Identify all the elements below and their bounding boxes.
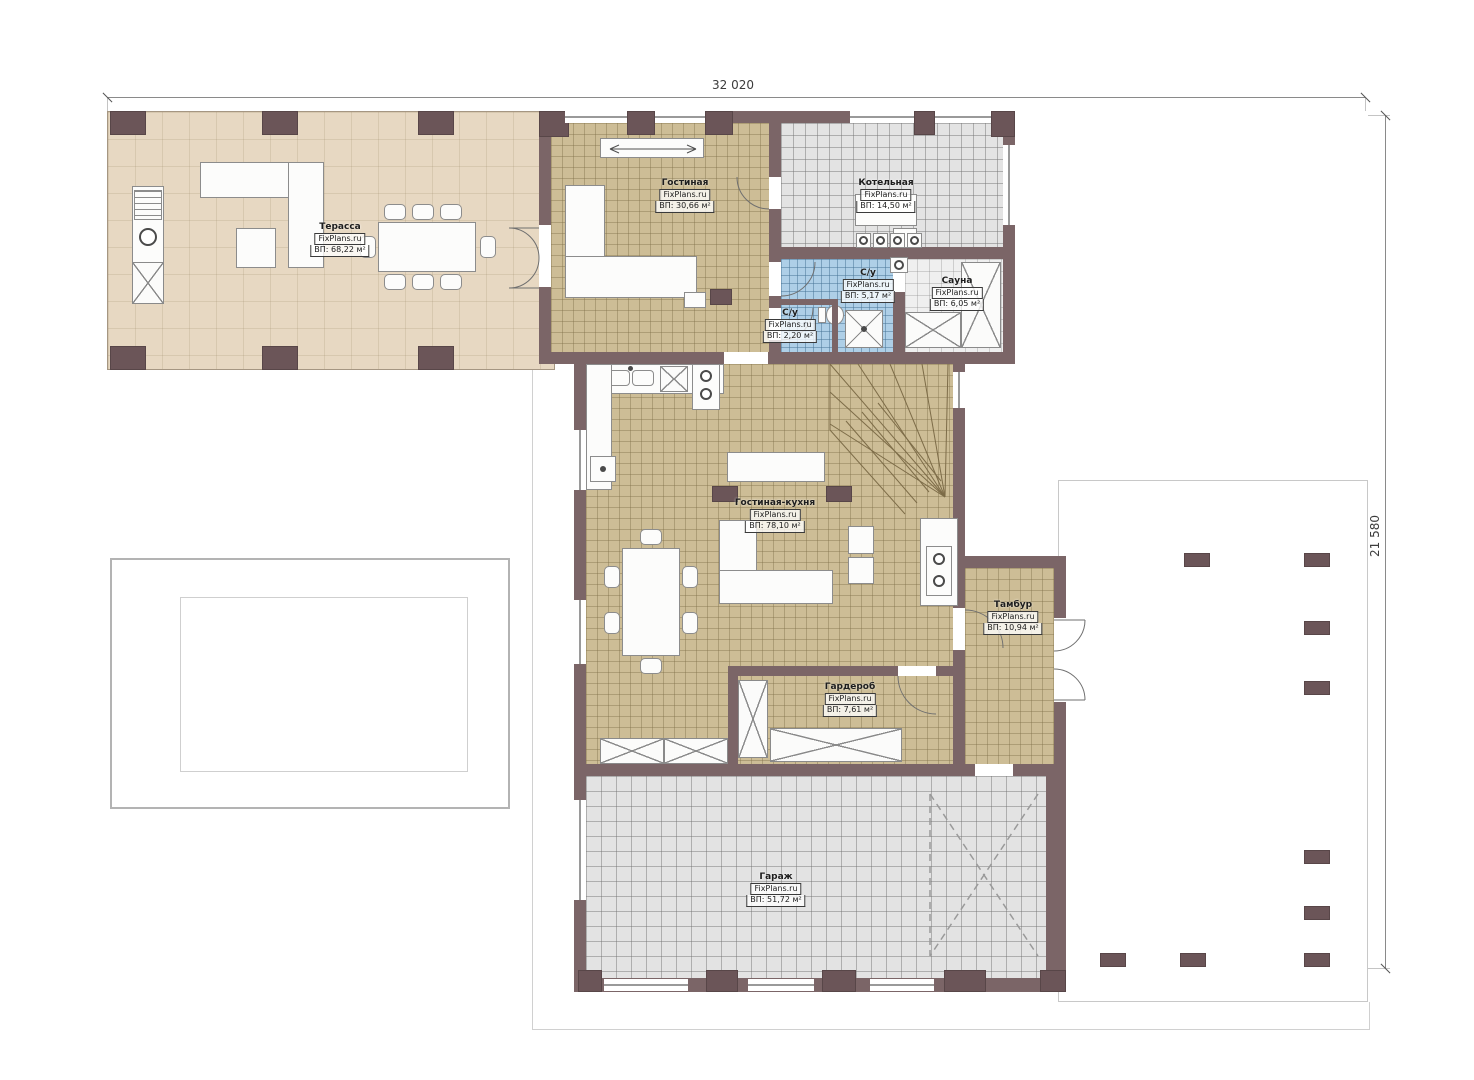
boiler-window [850, 111, 914, 123]
wc-partition-wall-v [832, 299, 838, 352]
kitchen-passage-opening [724, 352, 768, 364]
room-label-vestibule: Тамбур FixPlans.ru ВП: 10,94 м² [983, 600, 1042, 635]
dining-chair [604, 566, 620, 588]
kitchen-sofa-bottom [719, 570, 833, 604]
watermark: FixPlans.ru [824, 693, 875, 705]
room-area: ВП: 10,94 м² [983, 623, 1042, 634]
room-name: Гараж [759, 872, 792, 882]
watermark: FixPlans.ru [860, 189, 911, 201]
burner [700, 388, 712, 400]
vestibule-door-opening [953, 608, 965, 650]
room-label-boiler: Котельная FixPlans.ru ВП: 14,50 м² [856, 178, 915, 213]
wardrobe-wall-h [728, 666, 898, 676]
dining-table [622, 548, 680, 656]
dimension-height-label: 21 580 [1368, 510, 1382, 562]
boiler-window [935, 111, 991, 123]
room-label-sauna: Сауна FixPlans.ru ВП: 6,05 м² [930, 276, 984, 311]
porch-pillar [1304, 906, 1330, 920]
patio-outline-inner [180, 597, 468, 772]
garage-column [944, 970, 986, 992]
kitchen-side-window [953, 372, 965, 408]
outdoor-cabinet [132, 262, 164, 304]
dining-chair [682, 566, 698, 588]
toilet-tank [818, 307, 826, 323]
terrace-column [262, 111, 298, 135]
water-heater-dial [894, 260, 904, 270]
dining-chair [604, 612, 620, 634]
side-table [848, 526, 874, 554]
terrace-column [418, 111, 454, 135]
wardrobe-unit [738, 680, 768, 758]
living-window [655, 111, 705, 123]
outdoor-grill [134, 190, 162, 220]
wall-column [627, 111, 655, 135]
outdoor-sink [139, 228, 157, 246]
stove-burner [933, 575, 945, 587]
room-label-living: Гостиная FixPlans.ru ВП: 30,66 м² [655, 178, 714, 213]
dimension-line-right [1385, 115, 1386, 968]
kitchen-cabinet [660, 366, 688, 392]
terrace-door-opening [539, 225, 551, 287]
kitchen-island [727, 452, 825, 482]
wardrobe-unit [770, 728, 902, 762]
stove-burner [933, 553, 945, 565]
wall-column [991, 111, 1015, 137]
terrace-column [110, 346, 146, 370]
manifold-valve [859, 236, 868, 245]
living-side-table [684, 292, 706, 308]
entrance-door-opening [1054, 618, 1066, 702]
watermark: FixPlans.ru [750, 883, 801, 895]
room-name: Гардероб [825, 682, 876, 692]
terrace-chair [384, 274, 406, 290]
side-table [848, 557, 874, 584]
wall-column [705, 111, 733, 135]
living-boiler-door-opening [769, 177, 781, 209]
wardrobe-door-opening [898, 666, 936, 676]
room-name: Сауна [942, 276, 973, 286]
wall-column [914, 111, 935, 135]
garage-column [706, 970, 738, 992]
porch-pillar [1304, 681, 1330, 695]
burner [700, 370, 712, 382]
terrace-column [262, 346, 298, 370]
kitchen-window [574, 430, 586, 490]
terrace-column [110, 111, 146, 135]
terrace-chair [412, 274, 434, 290]
dining-chair [682, 612, 698, 634]
floor-plan-canvas: Терасса FixPlans.ru ВП: 68,22 м² Гостина… [0, 0, 1474, 1080]
terrace-column [418, 346, 454, 370]
room-name: С/у [860, 268, 876, 278]
porch-pillar [1184, 553, 1210, 567]
boiler-side-window [1003, 145, 1015, 225]
room-name: Гостиная-кухня [735, 498, 815, 508]
living-sofa-bottom [565, 256, 697, 298]
room-area: ВП: 5,17 м² [841, 291, 895, 302]
wc-partition-wall-h [781, 299, 838, 305]
manifold-valve [876, 236, 885, 245]
watermark: FixPlans.ru [314, 233, 365, 245]
terrace-chair [480, 236, 496, 258]
dimension-width-label: 32 020 [707, 78, 759, 92]
watermark: FixPlans.ru [987, 611, 1038, 623]
porch-pillar [1304, 850, 1330, 864]
terrace-coffee-table [236, 228, 276, 268]
site-boundary-bottom [532, 1029, 1370, 1030]
kitchen-window [574, 600, 586, 664]
porch-pillar [1304, 621, 1330, 635]
manifold-valve [910, 236, 919, 245]
room-area: ВП: 51,72 м² [746, 895, 805, 906]
garage-floor [586, 776, 1046, 978]
living-window [565, 111, 627, 123]
garage-column [578, 970, 602, 992]
watermark: FixPlans.ru [749, 509, 800, 521]
room-label-terrace: Терасса FixPlans.ru ВП: 68,22 м² [310, 222, 369, 257]
dining-chair [640, 529, 662, 545]
bar-stool [826, 486, 852, 502]
kitchen-faucet [628, 366, 633, 371]
shower-drain [861, 326, 867, 332]
garage-column [1040, 970, 1066, 992]
room-name: Котельная [858, 178, 913, 188]
room-area: ВП: 7,61 м² [823, 705, 877, 716]
porch-pillar [1304, 953, 1330, 967]
manifold-valve [893, 236, 902, 245]
dining-chair [640, 658, 662, 674]
porch-pillar [1100, 953, 1126, 967]
terrace-chair [440, 274, 462, 290]
room-area: ВП: 78,10 м² [745, 521, 804, 532]
room-label-garage: Гараж FixPlans.ru ВП: 51,72 м² [746, 872, 805, 907]
room-area: ВП: 14,50 м² [856, 201, 915, 212]
room-area: ВП: 68,22 м² [310, 245, 369, 256]
garage-window [748, 979, 814, 991]
tv-cabinet [600, 138, 704, 158]
room-name: Тамбур [994, 600, 1032, 610]
wardrobe-wall-v [728, 666, 738, 764]
room-area: ВП: 2,20 м² [763, 331, 817, 342]
vestibule-garage-door-opening [975, 764, 1013, 776]
kitchen-sink [632, 370, 654, 386]
terrace-dining-table [378, 222, 476, 272]
room-name: Терасса [319, 222, 361, 232]
room-label-bathroom: С/у FixPlans.ru ВП: 5,17 м² [841, 268, 895, 303]
terrace-chair [384, 204, 406, 220]
porch-pillar [1180, 953, 1206, 967]
garage-window [870, 979, 934, 991]
bathroom-door-opening [769, 262, 781, 296]
dimension-line-top [107, 97, 1365, 98]
room-area: ВП: 6,05 м² [930, 299, 984, 310]
vestibule-floor [965, 568, 1054, 764]
living-side-table-dark [710, 289, 732, 305]
room-name: С/у [782, 308, 798, 318]
watermark: FixPlans.ru [931, 287, 982, 299]
watermark: FixPlans.ru [764, 319, 815, 331]
site-boundary-left [532, 363, 533, 1030]
room-label-kitchen-living: Гостиная-кухня FixPlans.ru ВП: 78,10 м² [735, 498, 815, 533]
room-label-wc: С/у FixPlans.ru ВП: 2,20 м² [763, 308, 817, 343]
garage-column [822, 970, 856, 992]
terrace-chair [412, 204, 434, 220]
built-in-closet [664, 738, 728, 764]
appliance-knob [600, 466, 606, 472]
garage-window [604, 979, 688, 991]
watermark: FixPlans.ru [842, 279, 893, 291]
wardrobe-wall-h [936, 666, 953, 676]
garage-window [574, 800, 586, 900]
room-name: Гостиная [662, 178, 709, 188]
room-label-wardrobe: Гардероб FixPlans.ru ВП: 7,61 м² [823, 682, 877, 717]
watermark: FixPlans.ru [659, 189, 710, 201]
site-boundary-right [1369, 1002, 1370, 1030]
built-in-closet [600, 738, 664, 764]
terrace-chair [440, 204, 462, 220]
sauna-bench [905, 312, 961, 348]
room-area: ВП: 30,66 м² [655, 201, 714, 212]
porch-pillar [1304, 553, 1330, 567]
